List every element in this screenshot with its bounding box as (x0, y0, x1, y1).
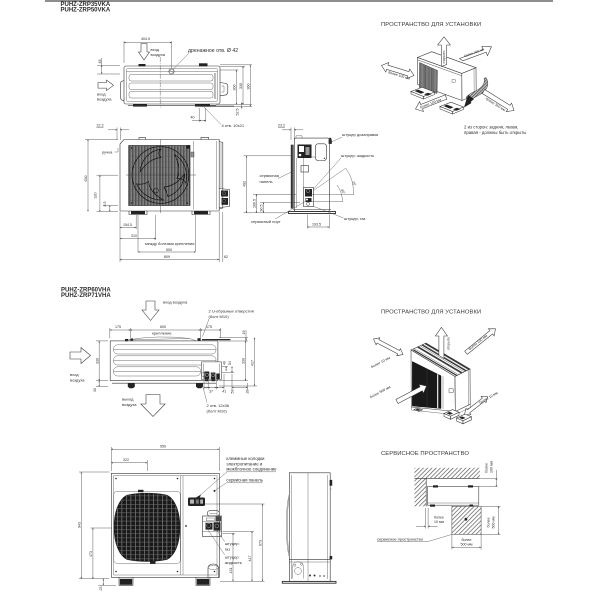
svg-text:сервисная панель: сервисная панель (226, 478, 263, 483)
svg-text:500 мм: 500 мм (491, 516, 495, 528)
svg-text:клеммные колодки: клеммные колодки (226, 456, 265, 461)
svg-text:30: 30 (93, 388, 97, 392)
svg-text:500: 500 (166, 248, 172, 252)
svg-text:28: 28 (246, 390, 250, 394)
svg-text:90.5: 90.5 (260, 205, 264, 212)
svg-text:открыто: открыто (442, 50, 446, 63)
svg-text:673: 673 (259, 540, 263, 546)
svg-text:330: 330 (239, 83, 243, 89)
svg-text:ручка: ручка (102, 150, 113, 155)
svg-text:штуцер: газ: штуцер: газ (344, 216, 366, 221)
svg-text:41: 41 (222, 389, 226, 393)
svg-text:вход воздуха: вход воздуха (163, 300, 188, 305)
svg-text:сервисное пространство: сервисное пространство (377, 536, 424, 541)
svg-text:62: 62 (224, 255, 228, 259)
svg-text:417: 417 (251, 360, 255, 366)
svg-text:PUHZ-ZRP50VKA: PUHZ-ZRP50VKA (61, 8, 111, 14)
svg-text:22.3: 22.3 (97, 124, 104, 128)
svg-text:809: 809 (164, 255, 170, 259)
svg-text:2 U-образных отверстия: 2 U-образных отверстия (209, 309, 254, 314)
svg-text:штуцер:: штуцер: (225, 541, 240, 546)
svg-text:панель: панель (260, 179, 273, 184)
svg-text:крепление: крепление (152, 330, 172, 335)
svg-text:943: 943 (78, 522, 82, 528)
svg-text:175: 175 (115, 325, 121, 329)
svg-text:320: 320 (93, 193, 97, 199)
svg-text:сервисная: сервисная (260, 173, 279, 178)
svg-text:воздуха: воздуха (97, 97, 112, 102)
svg-text:более: более (461, 538, 471, 542)
svg-text:52.5: 52.5 (236, 109, 240, 116)
svg-text:330: 330 (242, 358, 246, 364)
svg-text:19: 19 (242, 331, 246, 335)
svg-text:открыто: открыто (447, 337, 451, 350)
svg-text:175: 175 (206, 325, 212, 329)
svg-text:37: 37 (209, 389, 213, 393)
svg-text:между болтами крепления: между болтами крепления (145, 241, 194, 246)
svg-text:4 отв. 10х21: 4 отв. 10х21 (222, 123, 245, 128)
svg-text:ПРОСТРАНСТВО ДЛЯ УСТАНОВКИ: ПРОСТРАНСТВО ДЛЯ УСТАНОВКИ (381, 310, 481, 316)
svg-text:48: 48 (98, 60, 102, 64)
svg-text:воздуха: воздуха (151, 52, 166, 57)
svg-text:дренажное отв. Ø 42: дренажное отв. Ø 42 (188, 48, 238, 54)
svg-text:404.5: 404.5 (141, 37, 150, 41)
svg-text:жидкость: жидкость (225, 560, 242, 565)
svg-text:PUHZ-ZRP71VHA: PUHZ-ZRP71VHA (61, 293, 111, 299)
svg-text:40: 40 (191, 116, 195, 120)
svg-text:выход: выход (122, 397, 134, 402)
svg-text:600: 600 (160, 325, 166, 329)
svg-text:ПРОСТРАНСТВО ДЛЯ УСТАНОВКИ: ПРОСТРАНСТВО ДЛЯ УСТАНОВКИ (381, 22, 481, 28)
svg-text:23.2: 23.2 (278, 124, 285, 128)
svg-text:сервисный порт: сервисный порт (251, 219, 281, 224)
svg-text:447: 447 (248, 556, 252, 562)
svg-text:штуцер:: штуцер: (225, 555, 240, 560)
svg-text:330: 330 (95, 358, 99, 364)
svg-text:40: 40 (222, 361, 226, 365)
svg-text:более: более (434, 516, 444, 520)
svg-text:300: 300 (233, 85, 237, 91)
svg-text:10 мм: 10 мм (434, 520, 444, 524)
svg-text:431: 431 (229, 568, 233, 574)
svg-text:(болт М10): (болт М10) (207, 409, 228, 414)
svg-text:(болт М10): (болт М10) (209, 314, 230, 319)
svg-text:8.5: 8.5 (103, 202, 107, 207)
svg-text:СЕРВИСНОЕ ПРОСТРАНСТВО: СЕРВИСНОЕ ПРОСТРАНСТВО (381, 451, 469, 457)
svg-text:322: 322 (123, 458, 129, 462)
svg-text:360: 360 (247, 84, 251, 90)
svg-text:630: 630 (84, 176, 88, 182)
svg-text:166.5: 166.5 (253, 199, 257, 208)
svg-text:950: 950 (160, 445, 166, 449)
svg-text:54: 54 (228, 361, 232, 365)
svg-text:более: более (485, 463, 489, 473)
svg-text:100 мм: 100 мм (490, 461, 494, 473)
svg-text:штуцер дозаправки: штуцер дозаправки (342, 132, 378, 137)
svg-text:500 мм: 500 мм (461, 542, 473, 546)
svg-text:электропитание и: электропитание и (226, 461, 262, 466)
svg-text:492: 492 (243, 181, 247, 187)
svg-text:23: 23 (99, 587, 103, 591)
svg-text:вход: вход (70, 372, 79, 377)
svg-text:193.5: 193.5 (312, 222, 321, 226)
svg-text:межблочное соединение: межблочное соединение (226, 467, 277, 472)
svg-text:газ: газ (225, 546, 231, 551)
svg-text:воздуха: воздуха (70, 377, 85, 382)
svg-text:473: 473 (89, 551, 93, 557)
svg-text:154.5: 154.5 (123, 223, 132, 227)
svg-text:310: 310 (131, 234, 137, 238)
svg-text:более: более (487, 517, 491, 527)
svg-text:воздуха: воздуха (122, 402, 137, 407)
svg-text:штуцер: жидкость: штуцер: жидкость (341, 153, 374, 158)
svg-text:53: 53 (230, 390, 234, 394)
svg-text:2 отв. 12х36: 2 отв. 12х36 (207, 403, 230, 408)
svg-text:правая - должны быть открыты: правая - должны быть открыты (464, 130, 526, 135)
